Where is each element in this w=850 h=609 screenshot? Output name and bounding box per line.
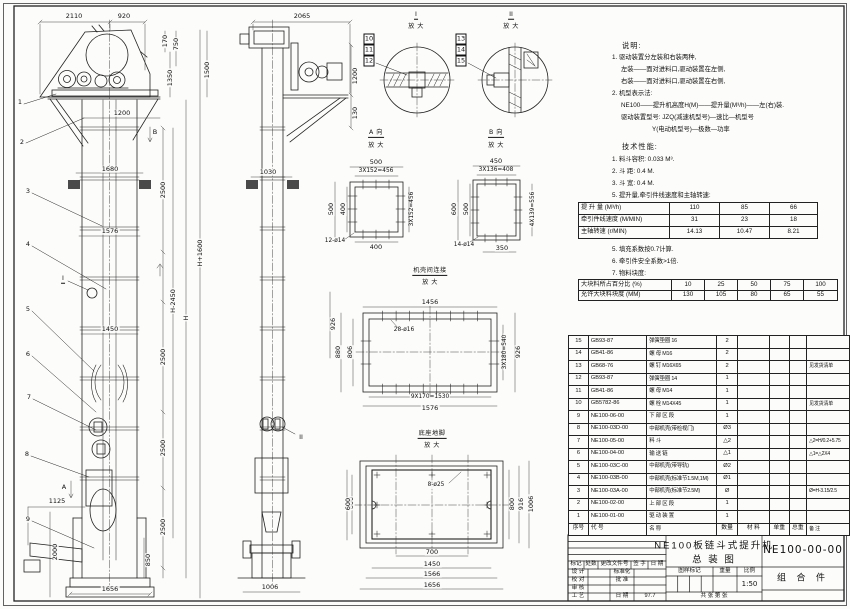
title-block-cell: 批 准 (616, 578, 629, 584)
title-block-cell: 标准化 (614, 570, 631, 576)
stamp-header-scale: 比例 (744, 569, 755, 575)
title-block-cell: 日 期 (651, 562, 664, 568)
title-block-cell: 签 字 (633, 562, 646, 568)
title-block-cell: 工 艺 (572, 594, 585, 600)
stamp-header-mark: 图样标记 (678, 569, 700, 575)
stamp-header-weight: 重量 (719, 569, 730, 575)
title-block-cell: 审 核 (572, 586, 585, 592)
title-block-cell: 日 期 (616, 594, 629, 600)
part-type-label: 组 合 件 (777, 574, 829, 583)
title-block-cell: 更改文件号 (601, 562, 629, 568)
drawing-title-sub: 总 装 图 (692, 555, 736, 565)
title-block-cell: 97.7 (645, 594, 656, 600)
sheet-count-row: 共 张 第 张 (700, 594, 727, 600)
scale-value: 1:50 (742, 580, 758, 588)
title-block-cell: 处数 (585, 562, 596, 568)
drawing-sheet: 2110920170750135015001200B168025001576H+… (0, 0, 850, 609)
title-block-cell: 设 计 (572, 570, 585, 576)
title-block-cell: 校 对 (572, 578, 585, 584)
title-block-cell: 标记 (570, 562, 581, 568)
drawing-number: NE100-00-00 (763, 544, 843, 556)
title-block: NE100板链斗式提升机 总 装 图 NE100-00-00 组 合 件 图样标… (0, 0, 850, 609)
drawing-title: NE100板链斗式提升机 (654, 541, 774, 551)
